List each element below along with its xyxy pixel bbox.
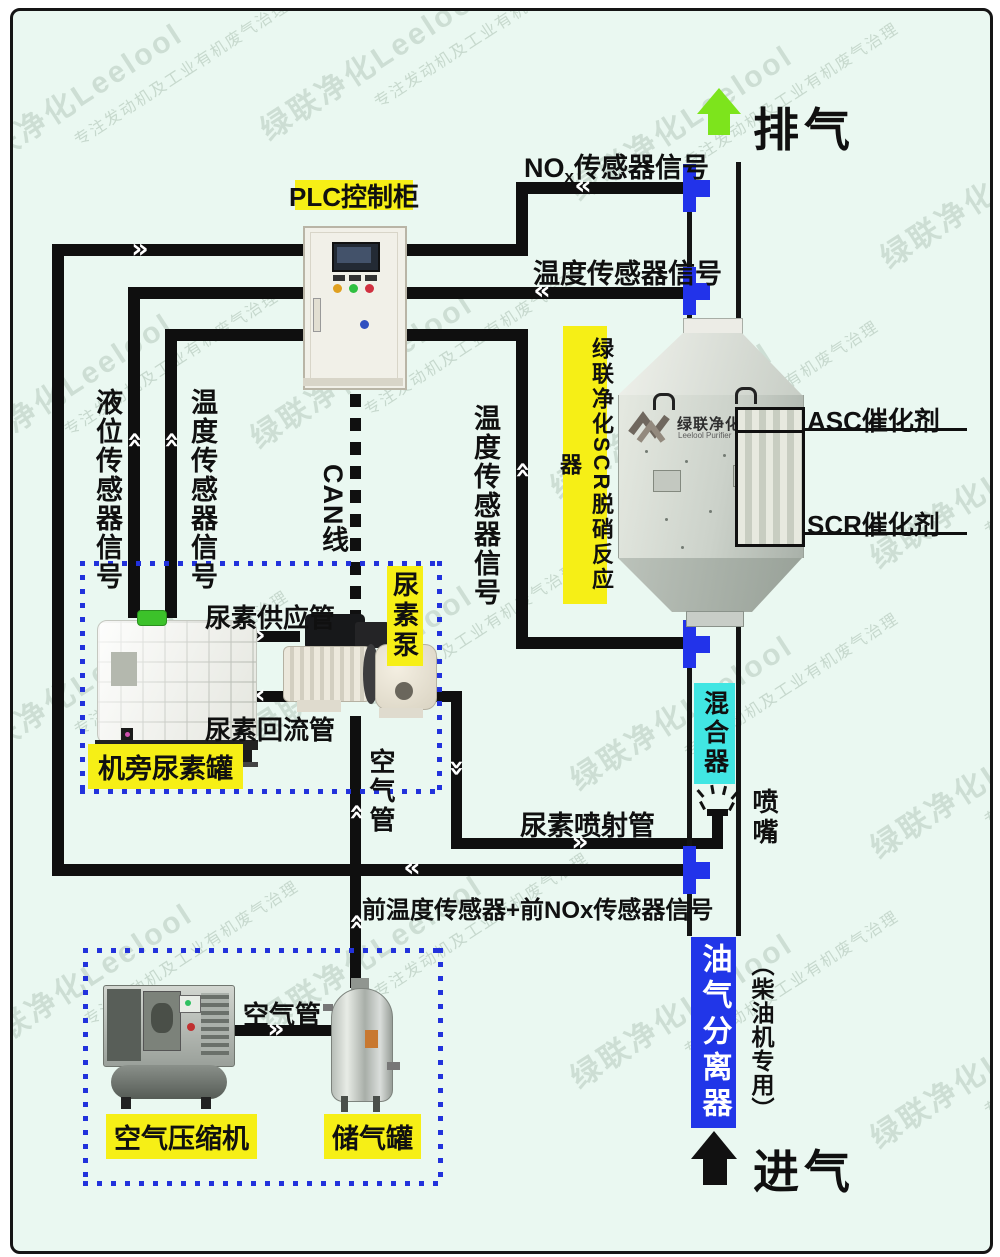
wire-temp-mid-signal-bottom (516, 637, 690, 649)
temp-tank-signal-label: 温度传感器信号 (183, 388, 222, 591)
urea-tank-valve-dot (125, 732, 130, 737)
can-bus-label: CAN线 (314, 464, 353, 554)
wire-front-signal-top (52, 244, 528, 256)
catalyst-cutaway (735, 407, 805, 547)
plc-switch (349, 275, 361, 281)
reactor-lifting-hook (735, 387, 757, 404)
watermark: 绿联净化Leelool专注发动机及工业有机废气治理 (860, 923, 993, 1181)
nozzle-spray (699, 801, 706, 810)
plc-led-red (365, 284, 374, 293)
watermark: 绿联净化Leelool专注发动机及工业有机废气治理 (240, 223, 583, 481)
scr-catalyst-label: SCR催化剂 (807, 505, 940, 542)
air-compressor (103, 983, 235, 1111)
front-sensors-signal-label: 前温度传感器+前NOx传感器信号 (362, 890, 713, 925)
air-tank-tag (365, 1030, 378, 1048)
watermark: 绿联净化Leelool专注发动机及工业有机废气治理 (10, 243, 283, 501)
plc-led-green (349, 284, 358, 293)
plc-label: PLC控制柜 (295, 180, 413, 210)
front-sensor-connector (683, 846, 710, 894)
poster-frame: 绿联净化Leelool专注发动机及工业有机废气治理 绿联净化Leelool专注发… (10, 8, 993, 1254)
compressor-foot (121, 1097, 131, 1109)
air-compressor-label: 空气压缩机 (106, 1114, 257, 1159)
wire-nox-signal-riser (516, 182, 528, 256)
air-zone-border (83, 1181, 443, 1186)
wire-front-signal-left (52, 244, 64, 876)
nox-signal-label: NOx传感器信号 (524, 146, 709, 187)
supply-pipe-label: 尿素供应管 (205, 598, 335, 635)
plc-cabinet (303, 226, 407, 390)
temp-mid-signal-label: 温度传感器信号 (466, 404, 505, 607)
air-zone-border (83, 948, 88, 1186)
reactor-label: 绿联净化SCR脱硝反应器 (563, 326, 607, 604)
flow-arrow-icon (131, 235, 148, 262)
urea-zone-border (80, 561, 85, 794)
exhaust-pipe-upper-right (736, 162, 741, 321)
reactor-access-panel (653, 470, 681, 492)
wire-temp-mid-signal-riser (516, 329, 528, 649)
air-tank-leg (373, 1096, 380, 1112)
air-pipe-bottom-label: 空气管 (243, 995, 321, 1032)
air-tank-valve (387, 1062, 400, 1070)
plc-knob (360, 320, 369, 329)
separator-box: 油气分离器 (691, 937, 736, 1128)
plc-switch (365, 275, 377, 281)
plc-switch (333, 275, 345, 281)
urea-tank-panel (111, 652, 137, 686)
nox-subscript: x (565, 167, 574, 186)
compressor-mechanism (151, 1003, 173, 1033)
urea-tank-label: 机旁尿素罐 (88, 744, 243, 789)
flow-arrow-icon (509, 461, 536, 478)
nozzle-label: 喷嘴 (746, 788, 783, 848)
compressor-display-led (185, 1000, 191, 1006)
nox-suffix: 传感器信号 (574, 153, 709, 183)
asc-layer (738, 410, 802, 433)
exhaust-up-arrow-icon (697, 88, 741, 114)
reactor-bottom-flange (686, 611, 744, 627)
separator-note: （柴油机专用） (744, 953, 778, 1121)
pump-foot (379, 708, 423, 718)
plc-led-amber (333, 284, 342, 293)
flow-arrow-icon (444, 759, 471, 776)
compressor-tank (111, 1065, 227, 1099)
urea-tank-cap (137, 610, 167, 626)
watermark: 绿联净化Leelool专注发动机及工业有机废气治理 (870, 43, 993, 301)
air-tank-body (331, 988, 393, 1102)
reactor-logo-en: Leelool Purifier (678, 431, 731, 440)
air-zone-border (438, 948, 443, 1186)
air-zone-border (83, 948, 443, 953)
wire-level-signal-riser (128, 287, 140, 618)
return-pipe-label: 尿素回流管 (205, 710, 335, 747)
compressor-grill (201, 993, 229, 1055)
nozzle-spray (696, 789, 704, 798)
air-tank-leg (341, 1096, 348, 1112)
compressor-button (187, 1023, 195, 1031)
nox-prefix: NO (524, 153, 565, 183)
nozzle-spray (728, 802, 735, 811)
compressor-side-panel (107, 989, 141, 1061)
watermark: 绿联净化Leelool专注发动机及工业有机废气治理 (860, 633, 993, 891)
injection-pipe-label: 尿素喷射管 (520, 804, 655, 843)
intake-label: 进气 (753, 1136, 855, 1202)
plc-base (303, 378, 403, 386)
nozzle-spray (710, 785, 715, 794)
air-storage-tank (325, 978, 397, 1112)
diagram-stage: 绿联净化Leelool专注发动机及工业有机废气治理 绿联净化Leelool专注发… (10, 8, 993, 1254)
reactor-hopper (615, 558, 805, 613)
exhaust-label: 排气 (753, 94, 855, 160)
plc-handle (313, 298, 321, 332)
watermark: 绿联净化Leelool专注发动机及工业有机废气治理 (860, 343, 993, 601)
plc-screen (332, 242, 380, 272)
compressor-foot (201, 1097, 211, 1109)
wire-front-signal-bottom (52, 864, 690, 876)
nozzle-head (707, 809, 728, 816)
flow-arrow-icon (403, 855, 420, 882)
reactor-logo-icon (628, 407, 674, 447)
mixer-box: 混合器 (694, 683, 735, 784)
exhaust-up-arrow-shaft (708, 113, 730, 135)
flow-arrow-icon (158, 431, 185, 448)
asc-catalyst-label: ASC催化剂 (807, 401, 940, 438)
air-tank-valve (323, 1004, 333, 1011)
wire-temp-tank-signal-riser (165, 329, 177, 618)
plc-screen-content (337, 247, 371, 263)
air-pipe-vertical-label: 空气管 (363, 748, 400, 835)
intake-up-arrow-icon (691, 1131, 737, 1159)
pipe-nozzle-stub (712, 812, 723, 849)
pump-port (395, 682, 413, 700)
air-tank-label: 储气罐 (324, 1114, 421, 1159)
nozzle-spray (722, 786, 727, 795)
exhaust-pipe-lower-right (736, 612, 741, 936)
watermark: 绿联净化Leelool专注发动机及工业有机废气治理 (10, 8, 293, 210)
intake-up-arrow-shaft (703, 1158, 727, 1185)
level-signal-label: 液位传感器信号 (88, 388, 127, 591)
reactor-bolts (645, 450, 648, 453)
temp-rear-signal-label: 温度传感器信号 (533, 252, 722, 291)
pump-motor-body (283, 646, 371, 702)
urea-pump-label: 尿素泵 (387, 566, 423, 666)
